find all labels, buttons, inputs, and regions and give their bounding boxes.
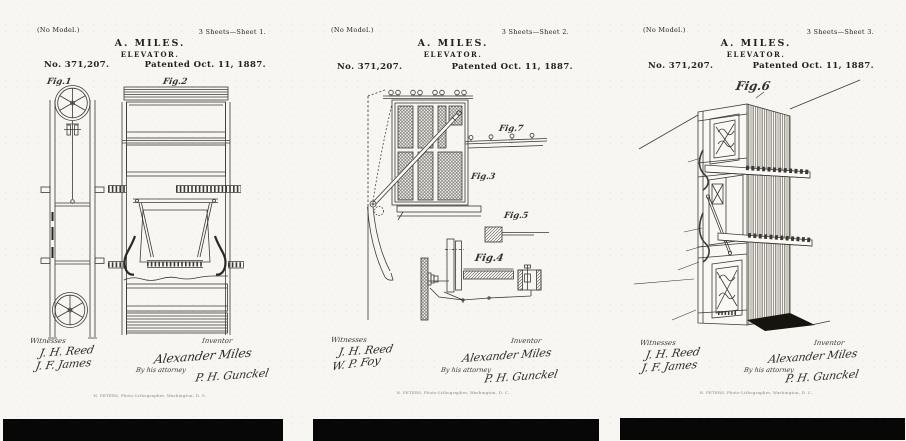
inventor-label: Inventor — [510, 337, 541, 345]
witnesses-label: Witnesses — [29, 337, 66, 345]
attorney-label: By his attorney — [440, 366, 491, 374]
scan-artifact-bar — [3, 419, 283, 441]
door-hanger-rollers — [389, 90, 467, 96]
patent-sheet-2: (No Model.) 3 Sheets—Sheet 2. A. MILES. … — [303, 0, 603, 441]
lithographer-line: N. PETERS, Photo-Lithographer, Washingto… — [0, 393, 300, 398]
attorney-label: By his attorney — [135, 366, 186, 374]
patent-scan-page: (No Model.) 3 Sheets—Sheet 1. A. MILES. … — [0, 0, 906, 441]
scan-artifact-bar — [620, 418, 905, 440]
lithographer-line: N. PETERS, Photo-Lithographer, Washingto… — [606, 390, 906, 395]
witnesses-label: Witnesses — [330, 336, 367, 344]
sheet3-drawings — [606, 0, 906, 441]
car-guide-flanges — [125, 236, 226, 275]
sheet2-drawings — [303, 0, 603, 441]
inventor-label: Inventor — [201, 337, 232, 345]
patent-sheet-3: (No Model.) 3 Sheets—Sheet 3. A. MILES. … — [606, 0, 906, 441]
witnesses-label: Witnesses — [639, 339, 676, 347]
scan-artifact-bar — [313, 419, 599, 441]
inventor-label: Inventor — [813, 339, 844, 347]
patent-sheet-1: (No Model.) 3 Sheets—Sheet 1. A. MILES. … — [0, 0, 300, 441]
lithographer-line: N. PETERS, Photo-Lithographer, Washingto… — [303, 390, 603, 395]
